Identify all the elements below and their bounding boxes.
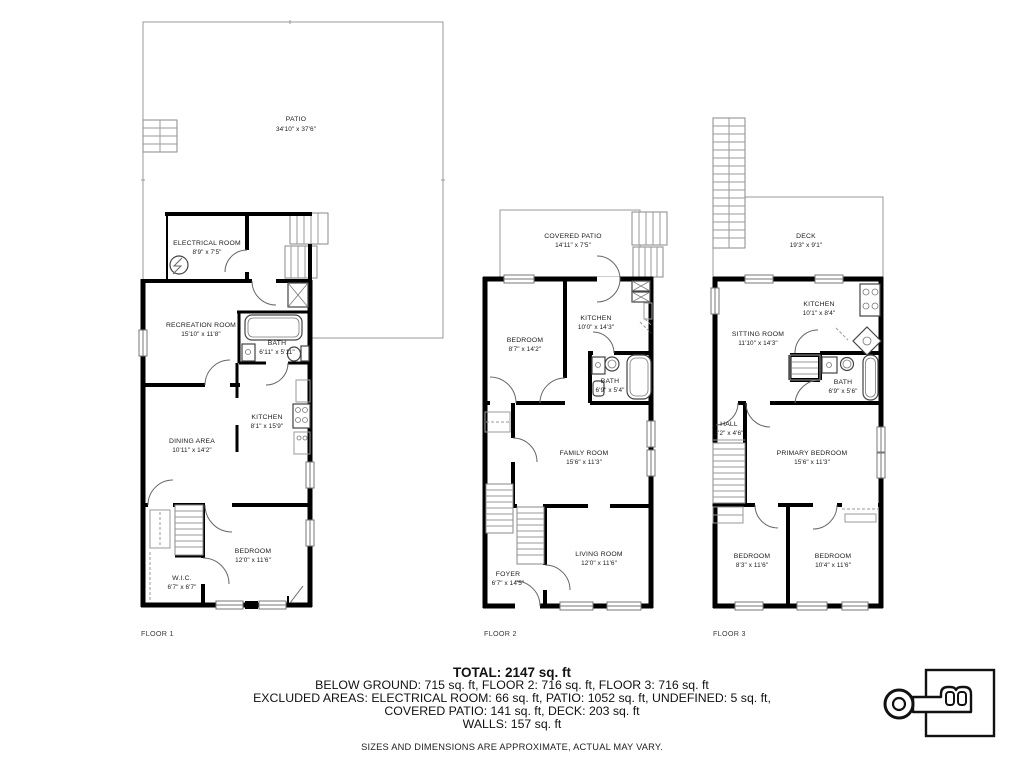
room-dims: 6'7" x 6'7" (167, 584, 196, 591)
room-label: W.I.C. (172, 575, 192, 582)
room-dims: 12'0" x 11'6" (235, 557, 271, 564)
room-label: KITCHEN (251, 414, 282, 421)
walls-area: WALLS: 157 sq. ft (0, 718, 1024, 731)
room-dims: 10'0" x 14'3" (578, 324, 614, 331)
room-label: LIVING ROOM (575, 551, 623, 558)
room-dims: 14'11" x 7'5" (555, 242, 591, 249)
room-label: PATIO (286, 116, 306, 123)
room-dims: 10'11" x 14'2" (172, 447, 212, 454)
room-label: KITCHEN (580, 315, 611, 322)
room-label: FOYER (496, 571, 520, 578)
floor-3-plan (711, 118, 885, 610)
room-dims: 19'3" x 9'1" (790, 242, 823, 249)
room-dims: 6'9" x 5'4" (595, 387, 624, 394)
covered-patio-stairs (632, 212, 667, 277)
room-label: BATH (268, 340, 286, 347)
room-label: BATH (601, 378, 619, 385)
room-dims: 6'7" x 14'5" (492, 580, 525, 587)
room-label: BATH (834, 379, 852, 386)
room-dims: 11'10" x 14'3" (738, 340, 778, 347)
room-dims: 12'0" x 11'6" (581, 560, 617, 567)
room-label: FAMILY ROOM (560, 450, 609, 457)
room-dims: 15'6" x 11'3" (566, 459, 602, 466)
room-label: HALL (720, 421, 738, 428)
room-label: DINING AREA (169, 438, 215, 445)
room-dims: 8'3" x 11'6" (736, 562, 768, 569)
key-house-icon (885, 670, 994, 736)
room-dims: 6'11" x 5'11" (259, 349, 294, 356)
room-label: COVERED PATIO (544, 233, 602, 240)
floor-1-plan (139, 20, 445, 609)
room-label: BEDROOM (815, 553, 852, 560)
room-label: SITTING ROOM (732, 331, 784, 338)
room-label: PRIMARY BEDROOM (777, 450, 848, 457)
room-label: KITCHEN (803, 301, 834, 308)
brand-logo (872, 658, 1012, 750)
room-dims: 34'10" x 37'6" (276, 126, 316, 133)
floor-plans-drawing: PATIO 34'10" x 37'6" ELECTRICAL ROOM 8'9… (0, 0, 1024, 768)
floor-1-label: FLOOR 1 (141, 629, 174, 638)
floor2-fill (483, 277, 653, 608)
floor-2-label: FLOOR 2 (484, 629, 517, 638)
floor-2-plan (483, 210, 667, 610)
floor-3-label: FLOOR 3 (713, 629, 746, 638)
patio-stairs (143, 120, 177, 152)
room-label: DECK (796, 233, 816, 240)
room-dims: 10'1" x 8'4" (803, 310, 836, 317)
room-dims: 8'9" x 7'5" (192, 249, 221, 256)
room-label: BEDROOM (235, 548, 272, 555)
floor-labels: FLOOR 1 FLOOR 2 FLOOR 3 (141, 629, 746, 638)
room-label: RECREATION ROOM (166, 322, 236, 329)
room-label: BEDROOM (507, 337, 544, 344)
electrical-symbol-icon (170, 256, 188, 274)
room-label: ELECTRICAL ROOM (173, 240, 241, 247)
room-dims: 3'2" x 4'6" (714, 430, 743, 437)
room-dims: 8'7" x 14'2" (509, 346, 542, 353)
area-summary: TOTAL: 2147 sq. ft BELOW GROUND: 715 sq.… (0, 666, 1024, 752)
room-dims: 8'1" x 15'9" (251, 423, 284, 430)
deck-stairs (713, 118, 745, 248)
room-dims: 15'6" x 11'3" (794, 459, 830, 466)
room-dims: 10'4" x 11'6" (815, 562, 851, 569)
disclaimer-text: SIZES AND DIMENSIONS ARE APPROXIMATE, AC… (0, 742, 1024, 752)
room-dims: 6'9" x 5'6" (828, 388, 857, 395)
room-label: BEDROOM (734, 553, 771, 560)
room-dims: 15'10" x 11'8" (181, 331, 221, 338)
floor-plan-page: PATIO 34'10" x 37'6" ELECTRICAL ROOM 8'9… (0, 0, 1024, 768)
